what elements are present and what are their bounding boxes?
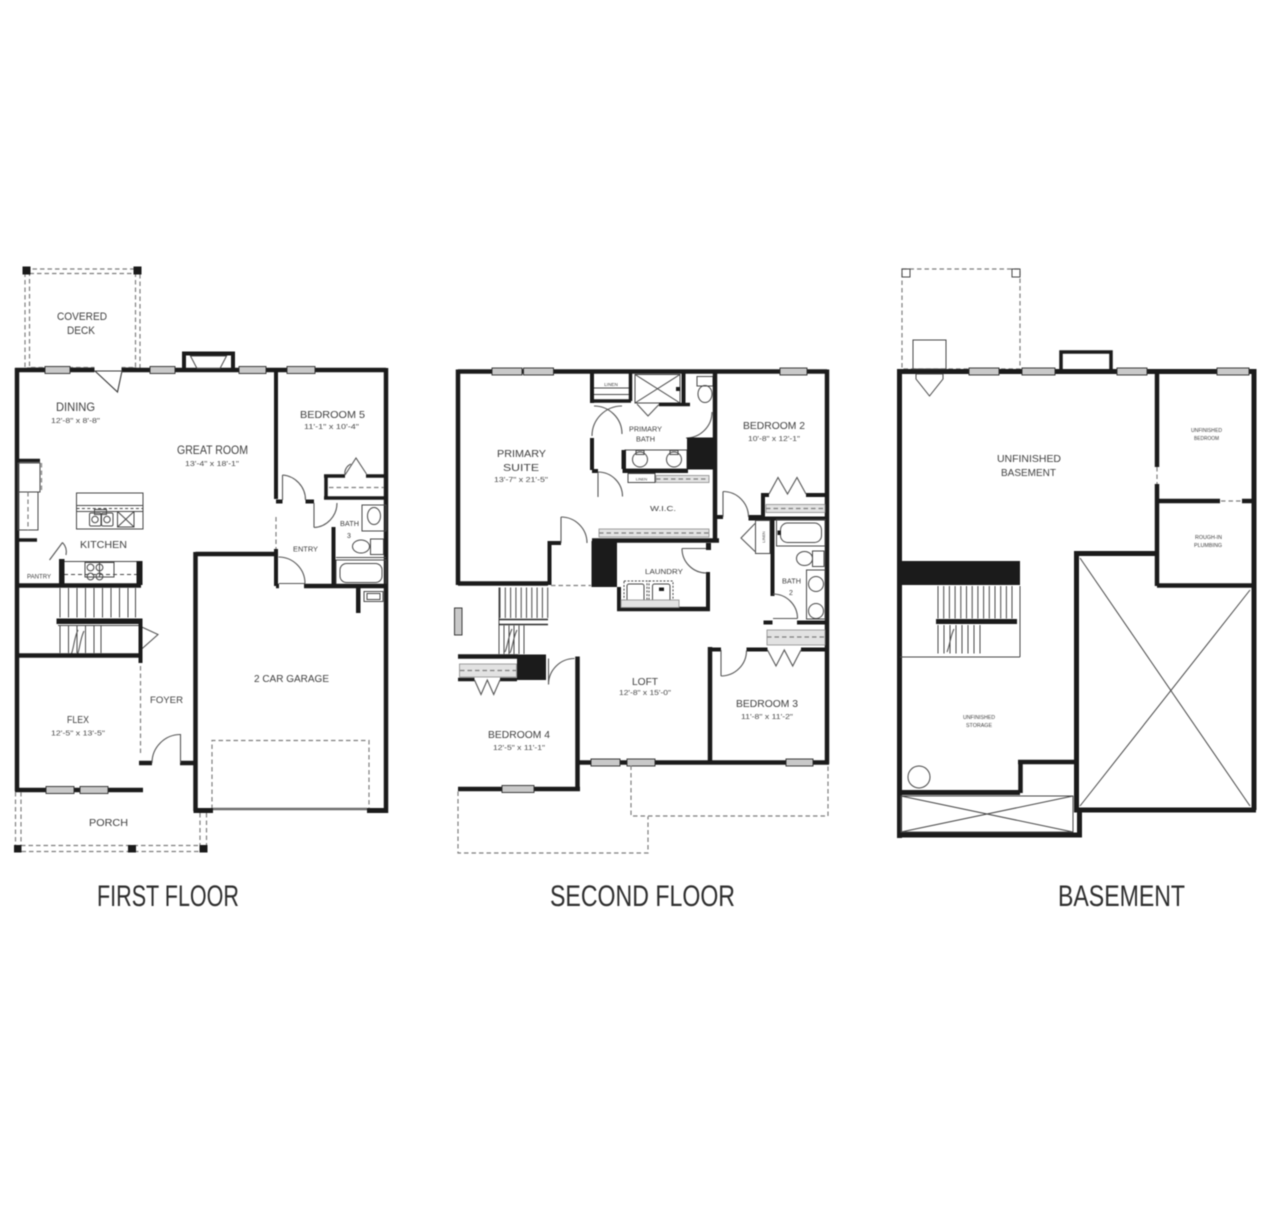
- svg-text:DINING: DINING: [56, 400, 95, 414]
- svg-text:SECOND FLOOR: SECOND FLOOR: [550, 880, 735, 913]
- svg-text:SUITE: SUITE: [503, 462, 539, 474]
- svg-text:W.I.C.: W.I.C.: [650, 504, 676, 513]
- svg-text:2: 2: [789, 590, 793, 597]
- svg-text:12'-5" x 11'-1": 12'-5" x 11'-1": [493, 745, 546, 752]
- svg-text:BEDROOM 2: BEDROOM 2: [743, 420, 805, 432]
- svg-text:PRIMARY: PRIMARY: [497, 448, 546, 460]
- svg-text:FIRST FLOOR: FIRST FLOOR: [97, 880, 239, 913]
- svg-text:2 CAR GARAGE: 2 CAR GARAGE: [254, 674, 329, 685]
- svg-text:BEDROOM 5: BEDROOM 5: [300, 409, 365, 421]
- svg-text:LINEN: LINEN: [604, 382, 618, 387]
- svg-text:LAUNDRY: LAUNDRY: [645, 569, 683, 576]
- svg-text:GREAT ROOM: GREAT ROOM: [177, 445, 248, 457]
- svg-text:ENTRY: ENTRY: [293, 547, 318, 554]
- svg-text:LOFT: LOFT: [632, 676, 659, 688]
- svg-text:PANTRY: PANTRY: [27, 575, 51, 581]
- svg-text:13'-4" x 18'-1": 13'-4" x 18'-1": [185, 461, 240, 468]
- svg-text:11'-1" x 10'-4": 11'-1" x 10'-4": [304, 424, 360, 431]
- svg-text:BATH: BATH: [636, 437, 655, 444]
- svg-text:COVERED: COVERED: [57, 311, 107, 323]
- svg-text:12'-8" x 8'-8": 12'-8" x 8'-8": [51, 418, 101, 425]
- svg-text:FOYER: FOYER: [150, 695, 183, 706]
- svg-text:FLEX: FLEX: [67, 714, 89, 726]
- svg-text:UNFINISHED: UNFINISHED: [1191, 428, 1222, 434]
- svg-text:12'-5" x 13'-5": 12'-5" x 13'-5": [51, 731, 106, 738]
- svg-text:11'-8" x 11'-2": 11'-8" x 11'-2": [741, 714, 794, 721]
- svg-text:KITCHEN: KITCHEN: [80, 539, 127, 551]
- svg-text:10'-8" x 12'-1": 10'-8" x 12'-1": [748, 436, 801, 443]
- svg-text:ROUGH-IN: ROUGH-IN: [1195, 535, 1222, 541]
- svg-text:PLUMBING: PLUMBING: [1194, 543, 1222, 549]
- svg-text:BEDROOM 4: BEDROOM 4: [488, 729, 550, 741]
- svg-text:LINEN: LINEN: [762, 531, 766, 542]
- svg-text:BASEMENT: BASEMENT: [1058, 880, 1185, 913]
- svg-text:STORAGE: STORAGE: [966, 723, 993, 729]
- svg-text:UNFINISHED: UNFINISHED: [963, 715, 995, 721]
- svg-text:12'-8" x 15'-0": 12'-8" x 15'-0": [619, 690, 672, 697]
- svg-text:BATH: BATH: [340, 521, 359, 528]
- svg-text:LINEN: LINEN: [636, 478, 647, 482]
- svg-text:PRIMARY: PRIMARY: [629, 427, 662, 434]
- svg-text:3: 3: [347, 533, 351, 540]
- svg-text:BEDROOM 3: BEDROOM 3: [736, 698, 798, 710]
- svg-text:DECK: DECK: [67, 325, 96, 337]
- svg-text:PORCH: PORCH: [89, 817, 128, 829]
- svg-text:13'-7" x 21'-5": 13'-7" x 21'-5": [494, 477, 549, 484]
- svg-text:BATH: BATH: [782, 579, 801, 586]
- svg-text:BASEMENT: BASEMENT: [1001, 468, 1056, 479]
- svg-text:UNFINISHED: UNFINISHED: [997, 454, 1061, 465]
- svg-text:BEDROOM: BEDROOM: [1194, 436, 1219, 442]
